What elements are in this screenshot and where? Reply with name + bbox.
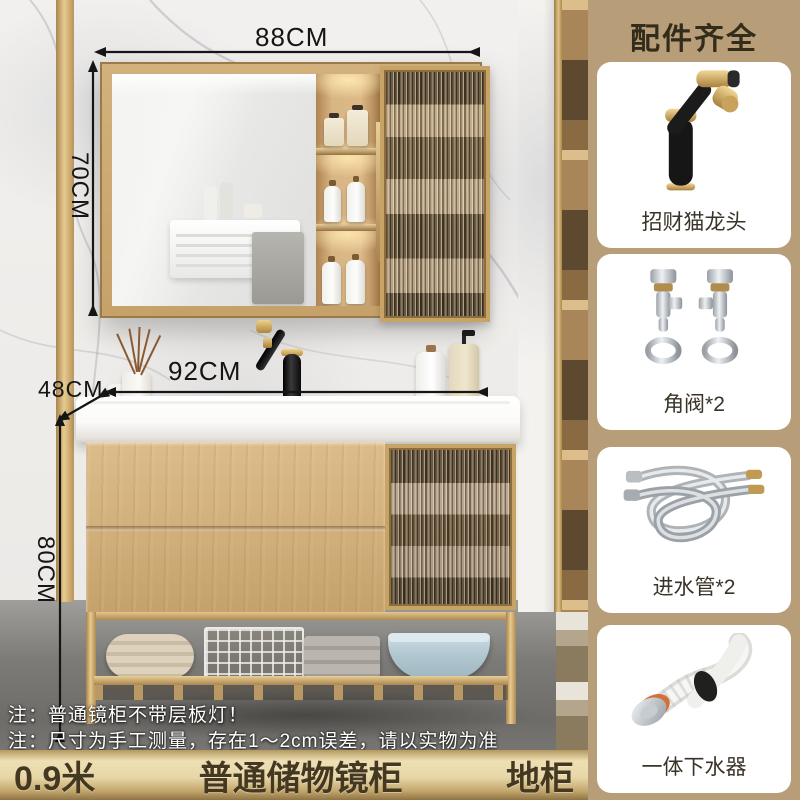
- reflected-bottle: [220, 182, 233, 220]
- gold-frame-rail: [86, 612, 516, 620]
- product-listing-image: 88CM 70CM 48CM 92CM 80CM 注：普通镜柜不带层板灯！ 注：…: [0, 0, 800, 800]
- lotion-bottle: [347, 182, 365, 222]
- note-line-1: 注：普通镜柜不带层板灯！: [8, 700, 248, 727]
- faucet-gold-tip: [263, 338, 272, 348]
- gold-wall-trim-left: [56, 0, 74, 602]
- faucet-icon: [597, 62, 791, 206]
- inlet-hose-icon: [597, 447, 791, 571]
- wire-basket: [204, 627, 304, 682]
- rolled-towel: [106, 634, 194, 678]
- spec-center-label: 普通储物镜柜: [199, 751, 403, 800]
- open-shelves: [316, 74, 380, 306]
- gold-wall-trim-right: [554, 0, 562, 612]
- vanity-fluted-glass-door: [385, 444, 516, 610]
- mirror-led-glow: [112, 74, 316, 94]
- spec-right-label: 地柜: [506, 751, 574, 800]
- accessory-label: 招财猫龙头: [642, 206, 747, 236]
- dim-counter-width: 92CM: [168, 356, 241, 387]
- gold-leg-right: [506, 612, 516, 724]
- mirror-door: [112, 74, 316, 306]
- faucet-gold-knob: [256, 320, 272, 333]
- folded-towels: [304, 636, 380, 678]
- accessory-card-drain: 一体下水器: [597, 625, 791, 793]
- shelf-board: [316, 148, 380, 155]
- bottom-spec-bar: 0.9米 普通储物镜柜 地柜: [0, 750, 588, 800]
- drain-pipe-icon: [597, 625, 791, 751]
- shelf-slats: [94, 685, 508, 700]
- note-line-2: 注：尺寸为手工测量，存在1～2cm误差，请以实物为准: [8, 726, 498, 753]
- accessory-label: 进水管*2: [653, 571, 736, 601]
- dim-mirror-width: 88CM: [255, 22, 328, 53]
- lotion-bottle: [346, 260, 365, 304]
- glass-door-handle: [376, 122, 380, 262]
- marble-pillar: [518, 0, 555, 612]
- lotion-bottle: [322, 262, 341, 304]
- cosmetic-jar: [347, 110, 368, 146]
- accessory-card-faucet: 招财猫龙头: [597, 62, 791, 248]
- shelf-board: [316, 224, 380, 231]
- ceramic-basin-counter: [76, 396, 520, 442]
- bathroom-photo: 88CM 70CM 48CM 92CM 80CM 注：普通镜柜不带层板灯！ 注：…: [0, 0, 588, 800]
- wall-niche-shelving: [562, 0, 588, 612]
- wall-niche-towels: [556, 612, 588, 752]
- drawer-seam: [86, 526, 385, 531]
- angle-valve-icon: [597, 254, 791, 388]
- accessory-card-hoses: 进水管*2: [597, 447, 791, 613]
- dim-mirror-height: 70CM: [65, 151, 93, 221]
- accessory-label: 一体下水器: [642, 751, 747, 781]
- dim-cabinet-height: 80CM: [31, 535, 59, 605]
- fluted-glass-door: [380, 66, 490, 322]
- accessory-card-valves: 角阀*2: [597, 254, 791, 430]
- reflected-jar: [244, 204, 262, 218]
- gold-bottom-shelf: [94, 676, 508, 685]
- mirror-cabinet: [100, 62, 482, 318]
- reflected-bottle: [204, 186, 217, 220]
- sidebar-title: 配件齐全: [588, 14, 800, 58]
- accessory-label: 角阀*2: [663, 388, 725, 418]
- spec-size-label: 0.9米: [14, 751, 95, 800]
- dim-depth: 48CM: [38, 376, 103, 403]
- reflected-towel: [252, 232, 304, 304]
- cosmetic-jar: [324, 118, 344, 146]
- lotion-bottle: [324, 186, 341, 222]
- accessories-sidebar: 配件齐全: [588, 0, 800, 800]
